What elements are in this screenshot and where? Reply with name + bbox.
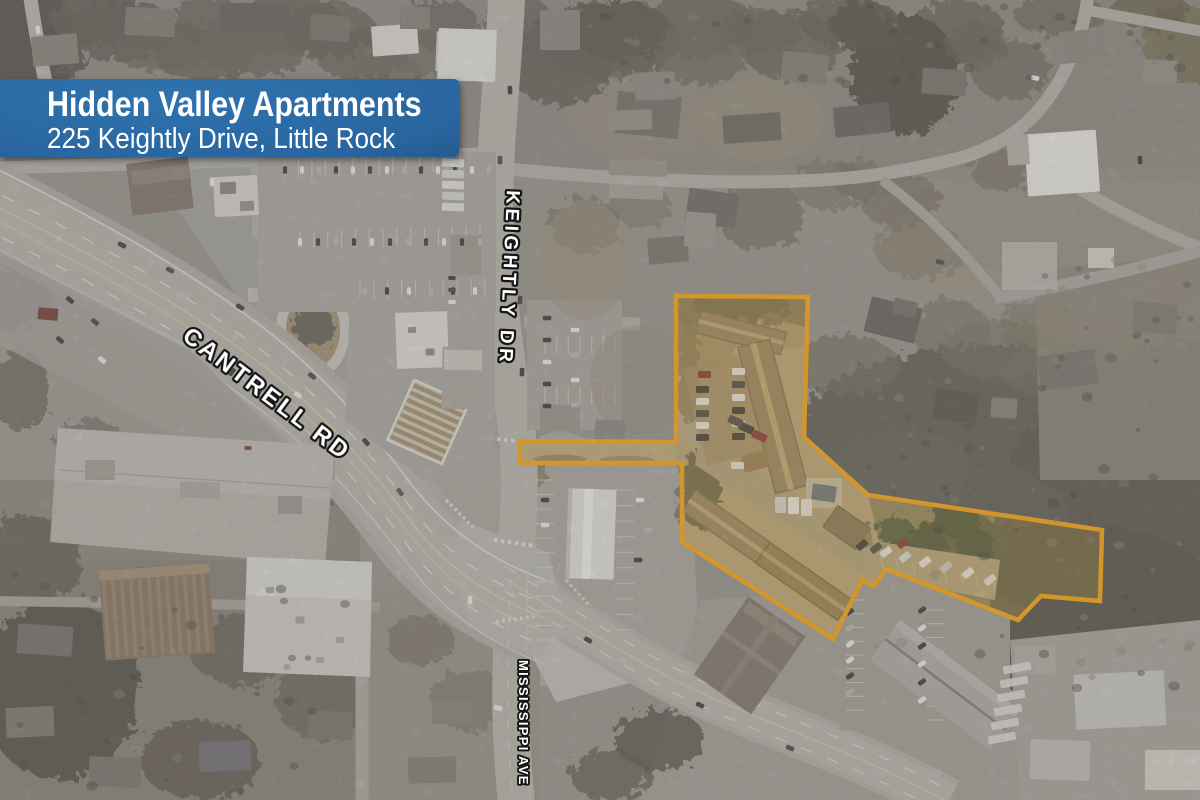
svg-text:MISSISSIPPI AVE: MISSISSIPPI AVE bbox=[516, 660, 531, 786]
